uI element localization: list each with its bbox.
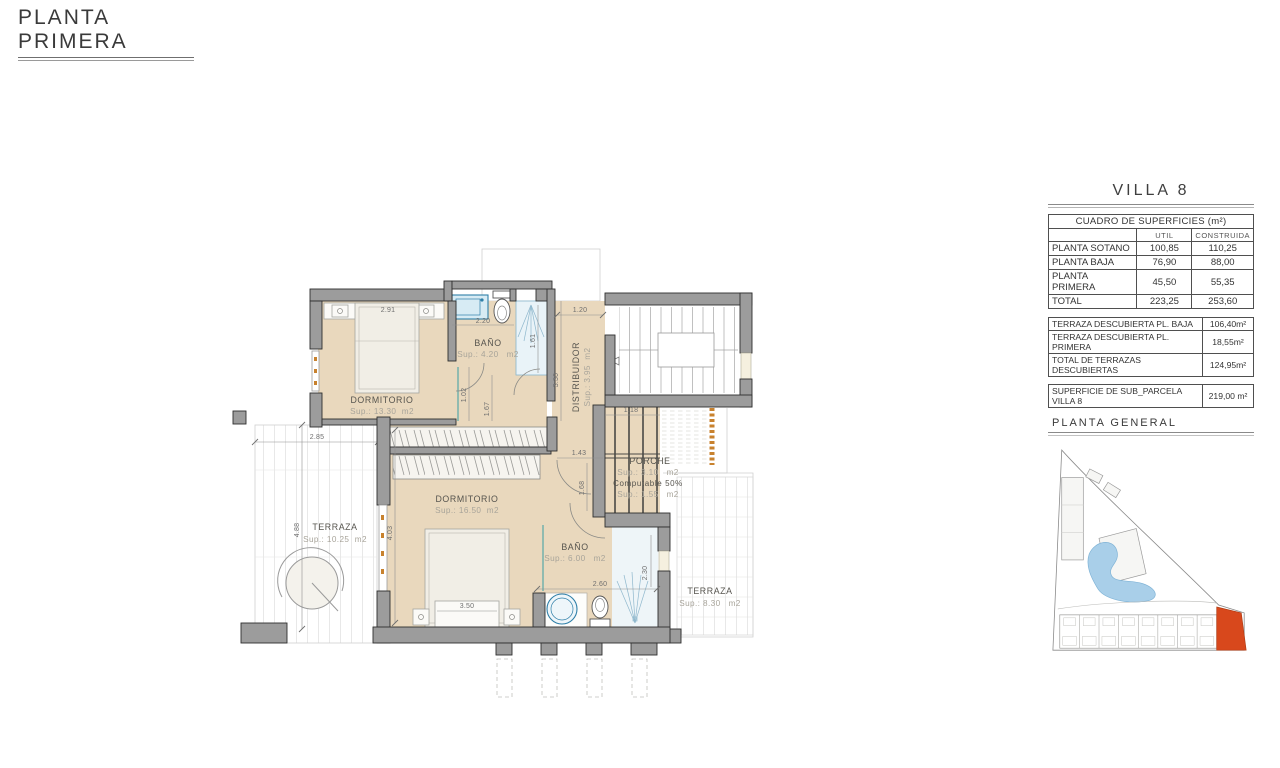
- table-row: TOTAL 223,25 253,60: [1049, 295, 1254, 309]
- wardrobes: [381, 427, 551, 479]
- label-bano-1: BAÑO: [474, 338, 501, 348]
- col-construida: CONSTRUIDA: [1192, 229, 1254, 242]
- label-bano-2: BAÑO: [561, 542, 588, 552]
- villa-underline: [1048, 204, 1254, 208]
- col-util: UTIL: [1137, 229, 1192, 242]
- svg-text:Sup.: 3.10 m2: Sup.: 3.10 m2: [617, 468, 679, 477]
- svg-text:1.68: 1.68: [579, 481, 586, 495]
- label-terraza-2: TERRAZA: [687, 586, 732, 596]
- svg-text:3.50: 3.50: [460, 603, 474, 610]
- left-terrace: [252, 422, 381, 643]
- site-plan-title: PLANTA GENERAL: [1048, 417, 1254, 429]
- svg-text:Sup.: 8.30 m2: Sup.: 8.30 m2: [679, 599, 741, 608]
- surfaces-table: CUADRO DE SUPERFICIES (m²) UTIL CONSTRUI…: [1048, 214, 1254, 309]
- svg-text:1.02: 1.02: [461, 388, 468, 402]
- label-distribuidor: DISTRIBUIDOR: [571, 342, 581, 412]
- table-row: PLANTA BAJA 76,90 88,00: [1049, 256, 1254, 270]
- svg-text:Sup.: 16.50 m2: Sup.: 16.50 m2: [435, 506, 499, 515]
- svg-text:2.30: 2.30: [642, 566, 649, 580]
- column-projections: [497, 659, 647, 697]
- svg-text:Sup.: 6.00 m2: Sup.: 6.00 m2: [544, 554, 606, 563]
- svg-text:1.67: 1.67: [484, 402, 491, 416]
- svg-text:1.61: 1.61: [530, 334, 537, 348]
- svg-text:2.91: 2.91: [381, 307, 395, 314]
- svg-text:4.03: 4.03: [387, 526, 394, 540]
- svg-text:2.60: 2.60: [593, 581, 607, 588]
- villa-title: VILLA 8: [1048, 182, 1254, 200]
- label-terraza-1: TERRAZA: [312, 522, 357, 532]
- parcel-table: SUPERFICIE DE SUB_PARCELA VILLA 8219,00 …: [1048, 384, 1254, 408]
- svg-text:1.20: 1.20: [573, 307, 587, 314]
- svg-text:Sup.: 13.30 m2: Sup.: 13.30 m2: [350, 407, 414, 416]
- svg-text:1.43: 1.43: [572, 450, 586, 457]
- sheet-title: PLANTA PRIMERA: [18, 6, 194, 61]
- sink-2: [547, 594, 577, 624]
- label-dormitorio-1: DORMITORIO: [350, 395, 413, 405]
- site-plan-underline: [1048, 432, 1254, 436]
- page-title: PLANTA PRIMERA: [18, 6, 194, 54]
- table-row: PLANTA PRIMERA 45,50 55,35: [1049, 270, 1254, 295]
- villa-row: [1060, 615, 1217, 648]
- info-panel: VILLA 8 CUADRO DE SUPERFICIES (m²) UTIL …: [1048, 182, 1254, 675]
- table-row: TERRAZA DESCUBIERTA PL. BAJA106,40m²: [1049, 318, 1254, 331]
- svg-text:Sup.: 10.25 m2: Sup.: 10.25 m2: [303, 535, 367, 544]
- table-row: PLANTA SOTANO 100,85 110,25: [1049, 242, 1254, 256]
- svg-text:Sup.: 1.55 m2: Sup.: 1.55 m2: [617, 490, 679, 499]
- toilet-1: [493, 291, 511, 323]
- title-underline: [18, 57, 194, 61]
- svg-text:2.20: 2.20: [476, 318, 490, 325]
- svg-text:Computable 50%: Computable 50%: [613, 479, 683, 488]
- table-row: TERRAZA DESCUBIERTA PL. PRIMERA18,55m²: [1049, 331, 1254, 354]
- terraces-table: TERRAZA DESCUBIERTA PL. BAJA106,40m² TER…: [1048, 317, 1254, 377]
- building-a: [1062, 478, 1084, 560]
- label-dormitorio-2: DORMITORIO: [435, 494, 498, 504]
- svg-text:1.18: 1.18: [624, 407, 638, 414]
- toilet-2: [590, 596, 610, 627]
- bed-dormitorio-2: [413, 529, 520, 627]
- label-porche: PORCHE: [629, 456, 670, 466]
- window-bath2: [659, 551, 669, 571]
- site-plan-map: [1048, 442, 1254, 670]
- svg-text:Sup.: 3.95 m2: Sup.: 3.95 m2: [583, 348, 592, 407]
- svg-text:Sup.: 4.20 m2: Sup.: 4.20 m2: [457, 350, 519, 359]
- svg-text:2.85: 2.85: [310, 434, 324, 441]
- floor-plan: 2.91 2.20 1.20 1.61 3.30 1.02 1.67 1.43 …: [230, 245, 770, 715]
- table-row: SUPERFICIE DE SUB_PARCELA VILLA 8219,00 …: [1049, 385, 1254, 408]
- svg-text:4.88: 4.88: [294, 523, 301, 537]
- table-row: TOTAL DE TERRAZAS DESCUBIERTAS124,95m²: [1049, 354, 1254, 377]
- surfaces-table-title: CUADRO DE SUPERFICIES (m²): [1049, 215, 1254, 229]
- drawing-sheet: PLANTA PRIMERA: [0, 0, 1280, 768]
- stair-window: [741, 353, 751, 379]
- stairwell: [605, 293, 752, 407]
- svg-text:3.30: 3.30: [553, 373, 560, 387]
